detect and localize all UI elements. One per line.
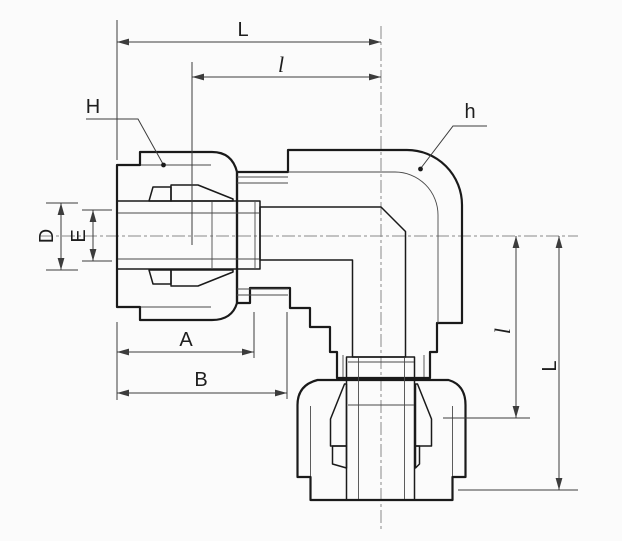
arrowhead xyxy=(275,390,287,397)
elbow-body xyxy=(237,150,462,378)
dim-label-L-top: L xyxy=(237,19,248,41)
dim-B: B xyxy=(117,312,287,399)
arrowhead xyxy=(369,74,381,81)
leader-dot xyxy=(161,163,166,168)
fitting-diagram: L l H h D xyxy=(0,0,622,541)
dim-label-L-right: L xyxy=(539,360,561,371)
arrowhead xyxy=(117,39,129,46)
leader-line xyxy=(86,119,163,164)
ferrule xyxy=(331,384,347,446)
arrowhead xyxy=(369,39,381,46)
arrowhead xyxy=(192,74,204,81)
leader-line xyxy=(421,126,487,168)
ferrule xyxy=(416,446,420,468)
ferrule xyxy=(149,270,171,284)
dim-l-top: l xyxy=(192,52,381,245)
callout-H: H xyxy=(86,96,166,167)
dim-A: A xyxy=(117,312,254,400)
arrowhead xyxy=(556,236,563,248)
arrowhead xyxy=(90,249,97,261)
dim-label-H: H xyxy=(86,96,100,118)
internal-lines xyxy=(118,165,453,499)
arrowhead xyxy=(117,390,129,397)
dim-label-D: D xyxy=(36,229,58,243)
body-hex-flat xyxy=(288,172,438,323)
centerlines xyxy=(40,26,578,532)
dim-label-B: B xyxy=(194,369,207,391)
corner-bore xyxy=(260,207,406,357)
arrowhead xyxy=(58,203,65,215)
arrowhead xyxy=(117,349,129,356)
ferrule xyxy=(333,446,347,468)
callout-h: h xyxy=(418,101,487,171)
arrowhead xyxy=(242,349,254,356)
fitting xyxy=(117,150,466,500)
leader-dot xyxy=(418,167,423,172)
dim-label-E: E xyxy=(68,229,90,242)
dim-label-l-top: l xyxy=(278,52,284,77)
drawing-canvas: L l H h D xyxy=(0,0,622,541)
dim-l-right: l xyxy=(443,236,530,418)
dim-L-right: L xyxy=(458,236,578,490)
dim-label-A: A xyxy=(179,329,193,351)
ferrule xyxy=(149,187,171,201)
ferrule xyxy=(416,384,432,446)
arrowhead xyxy=(58,258,65,270)
arrowhead xyxy=(513,236,520,248)
dim-L-top: L xyxy=(117,19,381,160)
dim-label-h: h xyxy=(464,101,475,123)
ferrule xyxy=(171,185,233,201)
arrowhead xyxy=(90,210,97,222)
arrowhead xyxy=(513,406,520,418)
arrowhead xyxy=(556,478,563,490)
dim-label-l-right: l xyxy=(490,328,515,334)
ferrule xyxy=(171,270,233,286)
